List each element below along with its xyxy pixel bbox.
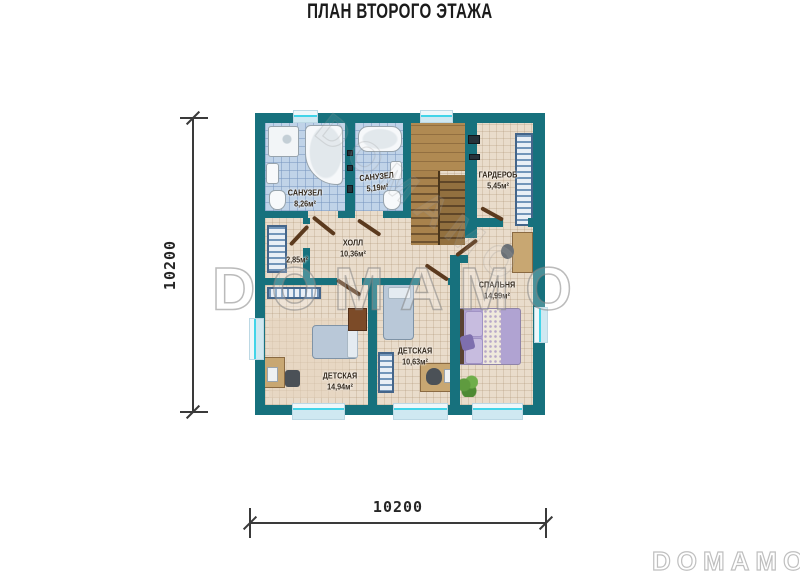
room-name: ХОЛЛ [340, 237, 366, 248]
room-name: ГАРДЕРОБ [479, 169, 518, 180]
room-area: 10,63м² [398, 356, 432, 367]
wall-segment [338, 211, 345, 218]
vent [347, 185, 353, 193]
window-bottom-2 [393, 403, 448, 420]
window-top-1 [293, 110, 318, 123]
room-name: САНУЗЕЛ [288, 187, 322, 198]
watermark-center: DOMAMO [212, 255, 588, 324]
wall-segment [303, 218, 310, 224]
watermark-corner: DOMAMO [652, 546, 800, 577]
wall-segment [528, 218, 533, 227]
vent [469, 154, 480, 160]
window-bottom-1 [292, 403, 345, 420]
dimension-line [192, 118, 194, 413]
toilet-1 [269, 190, 286, 210]
kids1-chair [285, 370, 300, 387]
room-area: 8,26м² [288, 198, 322, 209]
wardrobe-rack [515, 133, 533, 226]
dimension-line [250, 522, 546, 524]
kids1-pillow [347, 329, 358, 358]
kids1-laptop [267, 367, 278, 382]
sink-1 [266, 163, 279, 184]
room-name: ДЕТСКАЯ [323, 370, 357, 381]
room-label-kids-1: ДЕТСКАЯ 14,94м² [323, 370, 357, 391]
window-bottom-3 [472, 403, 523, 420]
plant [458, 375, 478, 397]
room-area: 14,94м² [323, 381, 357, 392]
floor-plan-page: ПЛАН ВТОРОГО ЭТАЖА [0, 0, 800, 580]
window-top-2 [420, 110, 453, 123]
dimension-value-bottom: 10200 [373, 498, 423, 516]
shower [268, 126, 299, 157]
dimension-value-left: 10200 [161, 240, 179, 290]
room-area: 5,45м² [479, 180, 518, 191]
kids2-chair [426, 368, 442, 385]
stairs-landing [411, 123, 465, 171]
page-title-text: ПЛАН ВТОРОГО ЭТАЖА [307, 0, 492, 24]
room-label-kids-2: ДЕТСКАЯ 10,63м² [398, 345, 432, 366]
kids2-wardrobe [378, 352, 394, 393]
room-label-wardrobe: ГАРДЕРОБ 5,45м² [479, 169, 518, 190]
room-name: ДЕТСКАЯ [398, 345, 432, 356]
wall-segment [265, 211, 308, 218]
window-left [249, 318, 264, 360]
room-label-bathroom-1: САНУЗЕЛ 8,26м² [288, 187, 322, 208]
page-title: ПЛАН ВТОРОГО ЭТАЖА [0, 0, 800, 24]
vent [468, 135, 480, 144]
